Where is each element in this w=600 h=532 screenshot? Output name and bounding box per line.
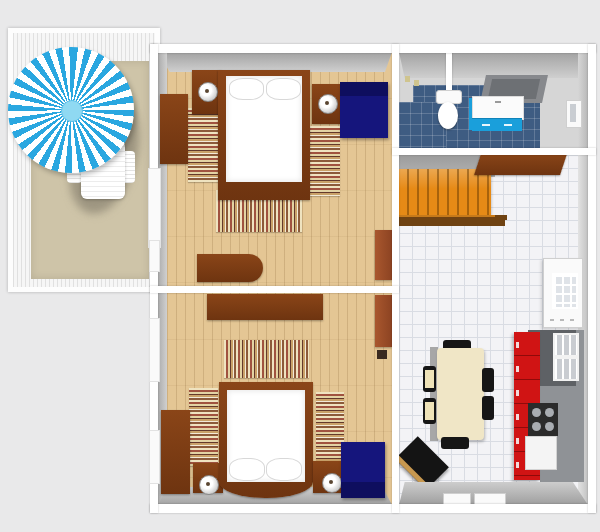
bedroom2-window-upper[interactable] <box>149 318 160 382</box>
kitchen-dining <box>399 155 588 505</box>
burner <box>545 408 554 417</box>
bathroom <box>399 52 588 155</box>
dining-chair-right-1[interactable] <box>482 368 494 392</box>
dining-chair-right-2[interactable] <box>482 396 494 420</box>
oven-front[interactable] <box>525 436 557 470</box>
bedroom2-pillow-left <box>229 458 265 481</box>
balcony-door[interactable] <box>148 168 161 248</box>
staircase[interactable] <box>397 169 491 219</box>
bathroom-window[interactable] <box>566 100 582 128</box>
bedroom1-window[interactable] <box>149 240 160 272</box>
door-hinge <box>550 319 554 321</box>
bedroom2-bed[interactable] <box>219 382 313 498</box>
bedroom1-cabinet[interactable] <box>375 230 392 280</box>
wall-bathroom-kitchen <box>392 148 596 155</box>
bedroom-2 <box>158 293 392 505</box>
bedroom1-wardrobe[interactable] <box>160 94 188 164</box>
patio-umbrella[interactable] <box>8 47 134 173</box>
bedroom1-pillow-right <box>266 78 301 100</box>
upper-cabinet-pane-2 <box>553 357 579 381</box>
bedroom2-rug-right[interactable] <box>316 392 344 466</box>
bedroom2-wall-item <box>377 350 387 359</box>
balcony <box>8 28 160 292</box>
dining-table[interactable] <box>437 348 484 440</box>
dining-chair-left-2[interactable] <box>423 398 436 424</box>
wall-between-bedrooms <box>150 286 399 293</box>
umbrella-center <box>61 100 83 122</box>
stairs-handrail-step <box>495 215 507 220</box>
burner <box>532 408 541 417</box>
chair-cushion <box>425 370 434 388</box>
bedroom1-armchair[interactable] <box>340 82 388 138</box>
bedroom2-armchair-back <box>341 482 385 498</box>
bedroom2-armchair[interactable] <box>341 442 385 498</box>
dining-chair-bottom[interactable] <box>441 437 469 449</box>
toilet-bowl[interactable] <box>438 102 458 129</box>
bedroom1-rug-left[interactable] <box>188 108 218 182</box>
bedroom2-lamp-left[interactable] <box>199 475 219 495</box>
chair-cushion <box>425 402 434 420</box>
wc-wall-fixture-2 <box>414 80 419 86</box>
bedroom-1 <box>158 52 392 286</box>
wall-bottom <box>150 504 596 513</box>
glass-paned-door[interactable] <box>543 258 583 328</box>
door-pane-grid <box>552 273 578 309</box>
wc-wall-fixture <box>405 76 410 82</box>
bedroom2-rug-left[interactable] <box>189 388 218 466</box>
wall-right <box>588 44 596 513</box>
gas-cooktop[interactable] <box>528 403 558 436</box>
bedroom1-dresser[interactable] <box>197 254 263 282</box>
bedroom1-top-wallface <box>158 52 392 72</box>
bedroom2-wardrobe[interactable] <box>161 410 190 494</box>
bedroom1-pillow-left <box>229 78 264 100</box>
vanity-handle <box>504 124 512 126</box>
bathroom-window-glass <box>570 104 576 122</box>
vanity-handle <box>482 124 490 126</box>
bedroom2-window-lower[interactable] <box>149 430 160 484</box>
dining-chair-left-1[interactable] <box>423 366 436 392</box>
cabinet-handles <box>516 342 519 348</box>
vanity-unit[interactable] <box>472 96 522 130</box>
bedroom1-lamp-right[interactable] <box>318 94 338 114</box>
floor-plan <box>0 0 600 532</box>
bedroom2-pillow-right <box>266 458 302 481</box>
bedroom2-rug-foot[interactable] <box>224 340 309 378</box>
wall-bedrooms-kitchen <box>392 44 399 513</box>
stairs-handrail <box>395 215 505 226</box>
wall-top <box>150 44 596 53</box>
upper-cabinet-pane-1 <box>553 333 579 357</box>
burner <box>532 422 541 431</box>
vanity-top <box>472 96 524 120</box>
bedroom2-sideboard[interactable] <box>207 294 323 320</box>
bedroom2-cabinet[interactable] <box>375 295 392 347</box>
bedroom1-armchair-back <box>340 82 388 96</box>
bedroom1-bed[interactable] <box>218 70 310 200</box>
bedroom1-rug-right[interactable] <box>308 126 340 196</box>
bedroom2-lamp-right[interactable] <box>322 473 342 493</box>
vanity-faucet <box>495 101 501 103</box>
vanity-drawers <box>472 118 522 131</box>
bedroom1-lamp-left[interactable] <box>198 82 218 102</box>
burner <box>545 422 554 431</box>
